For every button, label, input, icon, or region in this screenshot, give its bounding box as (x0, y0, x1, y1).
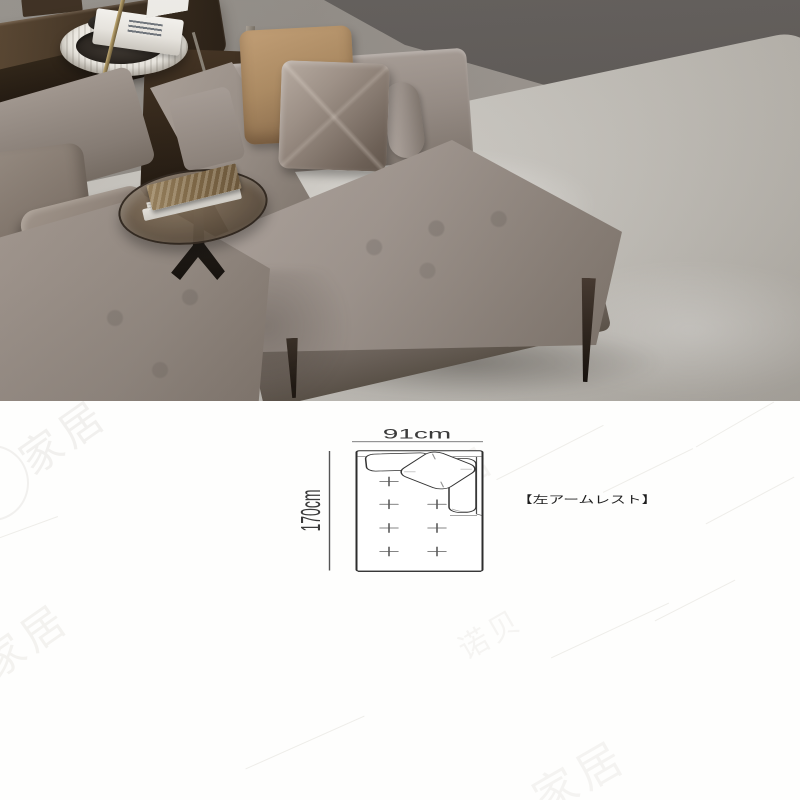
armrest-caption: 【左アームレスト】 (517, 494, 657, 506)
product-photo (0, 0, 800, 401)
dimension-diagram: 91cm 170cm (0, 400, 800, 800)
height-dimension-label: 170cm (295, 489, 327, 531)
width-dimension-label: 91cm (383, 426, 451, 442)
photo-tone-overlay (0, 0, 800, 401)
product-listing-image: 家居 家居 居 诺贝 家居 91cm 170cm (0, 0, 800, 800)
